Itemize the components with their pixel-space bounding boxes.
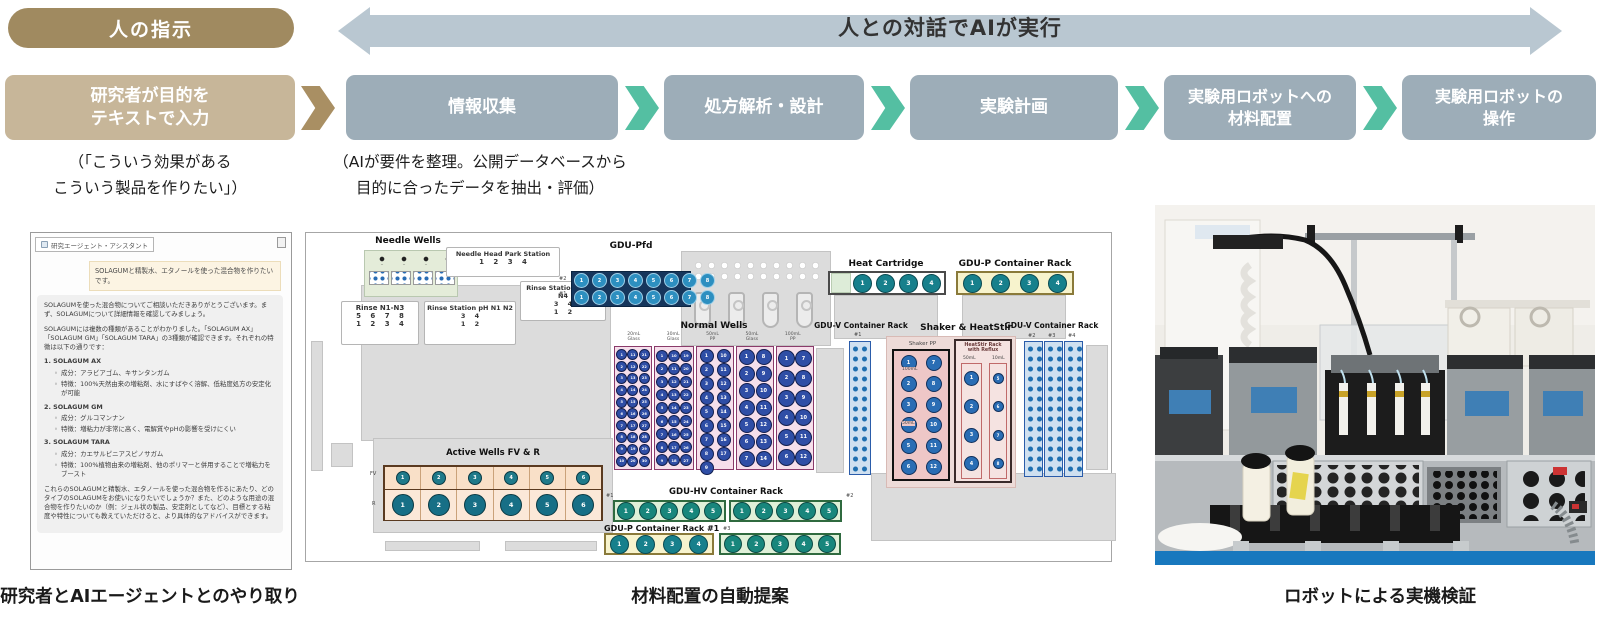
well-circle: 25 — [680, 428, 692, 440]
well-circle: 2 — [991, 274, 1010, 293]
well-circle: 3 — [616, 373, 627, 384]
flow-step-experiment-plan: 実験計画 — [910, 75, 1118, 140]
well-cell: 4 — [494, 467, 530, 489]
well-circle: 4 — [964, 456, 979, 471]
well-circle: 3 — [739, 383, 755, 399]
nw-col-header: 50mL PP — [706, 332, 719, 342]
chat-window-tab[interactable]: 研究エージェント・アシスタント — [35, 237, 154, 252]
well-circle: 10 — [926, 417, 942, 433]
heat-cartridge-rack: 1234 — [828, 271, 946, 295]
well-circle: 22 — [680, 389, 692, 401]
well-circle: 8 — [700, 273, 715, 288]
deck-block — [385, 541, 480, 551]
well-circle: 17 — [627, 420, 638, 431]
well-circle: 1 — [778, 350, 795, 367]
well-circle: 1 — [610, 535, 629, 554]
well-circle: 1 — [616, 349, 627, 360]
well-circle: 8 — [700, 290, 715, 305]
active-wells-fv-row: 123456 — [385, 467, 601, 489]
well-circle: 26 — [680, 441, 692, 453]
well-circle: 2 — [639, 502, 657, 520]
active-wells-label: Active Wells FV & R — [383, 448, 603, 458]
well-circle: 3 — [901, 397, 917, 413]
gdu-hv2-number: #2 — [846, 493, 853, 499]
well-circle: 13 — [627, 373, 638, 384]
well-cell: 4 — [494, 490, 530, 520]
well-circle: 7 — [993, 430, 1004, 441]
nw-col-50ml-pp: 1234567891011121314151617 — [696, 346, 734, 470]
well-circle: 1 — [964, 371, 979, 386]
gdu-hv-rack-2: 12345 — [729, 500, 842, 522]
flow-arrow-icon — [1363, 86, 1397, 130]
dialogue-banner-label: 人との対話でAIが実行 — [340, 12, 1560, 42]
well-circle: 5 — [739, 417, 755, 433]
well-circle: 3 — [778, 390, 795, 407]
well-circle: 5 — [818, 535, 836, 553]
well-circle: 3 — [1020, 274, 1039, 293]
needle-head-title: Needle Head Park Station — [448, 250, 558, 258]
gdu-v2-number: #2 — [1028, 333, 1035, 339]
well-circle: 4 — [628, 290, 643, 305]
well-circle: 4 — [628, 273, 643, 288]
normal-wells-label: Normal Wells — [659, 321, 769, 331]
flow-step-info-gathering: 情報収集 — [346, 75, 618, 140]
well-circle: 7 — [682, 290, 697, 305]
gdu-p1-green-number: #3 — [723, 526, 730, 532]
well-circle: 1 — [574, 273, 589, 288]
rinse-numbers: 1 2 3 4 — [343, 320, 417, 328]
well-circle: 2 — [656, 363, 668, 375]
well-circle: 12 — [795, 449, 812, 466]
well-circle: 12 — [668, 376, 680, 388]
well-circle: 1 — [739, 349, 755, 365]
note-user-goal: （「こういう効果がある こういう製品を作りたい」） — [15, 150, 285, 201]
well-circle: 2 — [616, 361, 627, 372]
agent-icon — [41, 241, 48, 248]
pfd-row-1: 12345678 — [574, 290, 688, 305]
needle-cell — [369, 271, 389, 285]
well-circle: 2 — [876, 274, 895, 293]
gdu-v-right-label: GDU-V Container Rack — [994, 321, 1109, 330]
well-cell: 1 — [385, 490, 421, 520]
ai-list-item-title: 3. SOLAGUM TARA — [44, 438, 276, 447]
well-circle: 5 — [646, 273, 661, 288]
well-circle: 15 — [717, 419, 731, 433]
rinse-title: Rinse N1-N3 — [343, 304, 417, 312]
chat-window-title: 研究エージェント・アシスタント — [51, 240, 148, 250]
well-circle: 10 — [756, 383, 772, 399]
well-circle: 6 — [576, 471, 590, 485]
needle-cell — [391, 271, 411, 285]
well-circle: 6 — [572, 494, 594, 516]
ai-list-item-detail: 成分：アラビアゴム、キサンタンガム — [54, 369, 276, 378]
well-circle: 2 — [428, 494, 450, 516]
well-circle: 1 — [617, 502, 635, 520]
well-circle: 2 — [739, 366, 755, 382]
well-circle: 23 — [680, 402, 692, 414]
well-circle: 7 — [795, 350, 812, 367]
well-circle: 8 — [656, 441, 668, 453]
well-circle: 5 — [901, 438, 917, 454]
well-circle: 17 — [668, 441, 680, 453]
gdu-pfd-label: GDU-Pfd — [571, 241, 691, 251]
well-circle: 24 — [639, 385, 650, 396]
well-circle: 11 — [627, 349, 638, 360]
ai-message-bubble: SOLAGUMを使った混合物についてご相談いただきありがとうございます。まず、S… — [37, 295, 283, 533]
well-circle: 1 — [963, 274, 982, 293]
ai-list-item-detail: 特徴：増粘力が非常に高く、電解質やpHの影響を受けにくい — [54, 425, 276, 434]
well-circle: 6 — [700, 419, 714, 433]
well-circle: 7 — [739, 451, 755, 467]
well-circle: 17 — [717, 447, 731, 461]
well-circle: 12 — [717, 377, 731, 391]
well-circle: 4 — [504, 471, 518, 485]
well-circle: 28 — [639, 432, 650, 443]
needle-wells-label: Needle Wells — [358, 236, 458, 246]
well-circle: 5 — [536, 494, 558, 516]
ai-list-item-detail: 特徴：100%天然由来の増粘剤、水にすばやく溶解、低粘度処方の安定化が可能 — [54, 380, 276, 399]
well-circle: 7 — [616, 420, 627, 431]
well-circle: 4 — [500, 494, 522, 516]
fv-row-label: FV — [370, 471, 376, 477]
shaker-pp-rack: 123456789101112 — [892, 349, 950, 481]
well-circle: 1 — [853, 274, 872, 293]
well-circle: 3 — [656, 376, 668, 388]
well-circle: 25 — [639, 397, 650, 408]
caption-deck: 材料配置の自動提案 — [555, 583, 865, 608]
well-circle: 29 — [639, 444, 650, 455]
ai-list-item-title: 1. SOLAGUM AX — [44, 357, 276, 366]
flow-arrow-icon — [871, 86, 905, 130]
well-circle: 7 — [682, 273, 697, 288]
well-circle: 3 — [899, 274, 918, 293]
well-circle: 7 — [700, 433, 714, 447]
caption-robot: ロボットによる実機検証 — [1225, 583, 1535, 608]
well-circle: 5 — [993, 373, 1004, 384]
well-circle: 4 — [778, 409, 795, 426]
gdu-pfd-rack: 12345678 12345678 — [571, 271, 691, 307]
needle-wells-board — [364, 250, 458, 297]
rinse-numbers: 5 6 7 8 — [343, 312, 417, 320]
well-circle: 5 — [646, 290, 661, 305]
well-circle: 3 — [776, 502, 794, 520]
rinse-n1-n3: Rinse N1-N3 5 6 7 8 1 2 3 4 — [341, 301, 419, 345]
pfd-row-2: 12345678 — [574, 273, 688, 288]
well-circle: 12 — [627, 361, 638, 372]
well-circle: 12 — [756, 417, 772, 433]
nw-col-header: 20mL Glass — [627, 332, 640, 342]
well-circle: 9 — [756, 366, 772, 382]
well-circle: 1 — [574, 290, 589, 305]
well-circle: 9 — [795, 390, 812, 407]
well-circle: 5 — [778, 429, 795, 446]
gdu-p1-green-rack: 12345 — [719, 533, 841, 555]
well-circle: 4 — [682, 502, 700, 520]
heatstir-50ml-label: 50mL — [963, 356, 976, 361]
rinse-numbers: 1 2 — [522, 308, 604, 316]
well-circle: 4 — [922, 274, 941, 293]
window-restore-icon[interactable] — [277, 237, 286, 248]
gdu-v-rack-3 — [1044, 341, 1063, 477]
nw-col-header: 30mL Glass — [667, 332, 680, 342]
deck-block — [1086, 345, 1108, 470]
well-circle: 4 — [700, 391, 714, 405]
well-circle: 4 — [1048, 274, 1067, 293]
heatstir-50ml-column: 1234 — [961, 363, 982, 479]
well-circle: 14 — [717, 405, 731, 419]
well-circle: 8 — [993, 458, 1004, 469]
well-circle: 2 — [964, 399, 979, 414]
well-circle: 15 — [668, 415, 680, 427]
well-circle: 30 — [639, 456, 650, 467]
deck-block — [311, 341, 323, 471]
well-circle: 1 — [724, 535, 742, 553]
ai-list-item-detail: 成分：グルコマンナン — [54, 414, 276, 423]
well-circle: 6 — [778, 449, 795, 466]
well-circle: 5 — [616, 397, 627, 408]
well-cell: 1 — [385, 467, 421, 489]
needle-dots — [371, 255, 455, 265]
well-circle: 13 — [756, 434, 772, 450]
well-circle: 7 — [926, 355, 942, 371]
agent-chat-window: 研究エージェント・アシスタント SOLAGUMと精製水、エタノールを使った混合物… — [30, 232, 292, 570]
well-circle: 2 — [778, 370, 795, 387]
well-circle: 11 — [717, 363, 731, 377]
well-circle: 3 — [610, 290, 625, 305]
well-circle: 14 — [756, 451, 772, 467]
well-circle: 6 — [901, 459, 917, 475]
shaker-100ml-label: 100mL — [902, 367, 917, 372]
well-circle: 1 — [396, 471, 410, 485]
deck-block — [331, 443, 353, 467]
well-circle: 16 — [668, 428, 680, 440]
well-circle: 5 — [700, 405, 714, 419]
heatstir-10ml-column: 5678 — [989, 363, 1007, 479]
well-circle: 2 — [592, 290, 607, 305]
ai-paragraph: これらのSOLAGUMと精製水、エタノールを使った混合物を作るにあたり、どのタイ… — [44, 485, 276, 522]
well-circle: 6 — [739, 434, 755, 450]
flow-arrow-brown-icon — [301, 86, 335, 130]
well-circle: 3 — [610, 273, 625, 288]
well-circle: 11 — [756, 400, 772, 416]
well-circle: 4 — [798, 502, 816, 520]
shaker-50ml-label: 50mL — [902, 421, 915, 426]
well-circle: 13 — [717, 391, 731, 405]
flow-step-robot-operation: 実験用ロボットの 操作 — [1402, 75, 1596, 140]
well-circle: 7 — [656, 428, 668, 440]
nw-col-100ml-pp: 123456789101112 — [776, 346, 814, 470]
needle-cell — [413, 271, 433, 285]
rinse-station-ph-n1-n2: Rinse Station pH N1 N2 3 4 1 2 — [424, 301, 516, 345]
well-circle: 18 — [627, 432, 638, 443]
gdu-v4-number: #4 — [1068, 333, 1075, 339]
flow-step-formulation-analysis: 処方解析・設計 — [664, 75, 864, 140]
r-row-label: R — [372, 501, 375, 507]
needle-head-numbers: 1 2 3 4 — [448, 258, 558, 266]
ai-list-item-detail: 成分：カエサルピニアスピノサガム — [54, 450, 276, 459]
well-circle: 2 — [636, 535, 655, 554]
heatstir-10ml-label: 10mL — [992, 356, 1005, 361]
well-circle: 2 — [700, 363, 714, 377]
well-circle: 9 — [700, 461, 714, 475]
well-circle: 11 — [668, 363, 680, 375]
well-circle: 6 — [664, 290, 679, 305]
well-circle: 16 — [717, 433, 731, 447]
well-circle: 9 — [926, 397, 942, 413]
deck-layout-diagram: Needle Wells Needle Head Park Station 1 … — [305, 232, 1112, 562]
well-circle: 4 — [656, 389, 668, 401]
robot-photo-illustration — [1155, 205, 1595, 565]
gdu-v-left-number: #1 — [854, 332, 861, 338]
well-circle: 1 — [392, 494, 414, 516]
flow-input-box: 研究者が目的を テキストで入力 — [5, 75, 295, 140]
well-circle: 3 — [700, 377, 714, 391]
gdu-v-rack-4 — [1064, 341, 1083, 477]
nw-col-30ml-glass: 1234567891011121314151617181920212223242… — [654, 346, 694, 470]
well-cell: 2 — [421, 490, 457, 520]
human-instruction-pill: 人の指示 — [8, 8, 294, 48]
gdu-v-rack-2 — [1024, 341, 1043, 477]
well-circle: 5 — [704, 502, 722, 520]
well-circle: 13 — [668, 389, 680, 401]
gdu-p-rack-label: GDU-P Container Rack — [954, 259, 1076, 269]
nw-col-20ml-glass: 1234567891011121314151617181920212223242… — [614, 346, 652, 470]
rinse-numbers: 1 2 — [426, 320, 514, 328]
well-circle: 9 — [616, 444, 627, 455]
nw-col-header: 100mL PP — [785, 332, 801, 342]
well-circle: 2 — [901, 376, 917, 392]
pfd-row1-label: #1 — [559, 291, 566, 297]
well-circle: 10 — [616, 456, 627, 467]
well-circle: 24 — [680, 415, 692, 427]
nw-col-50ml-glass: 1234567891011121314 — [736, 346, 774, 470]
pfd-row2-label: #2 — [559, 276, 566, 282]
heat-cartridge-label: Heat Cartridge — [826, 259, 946, 269]
gdu-p-rack: 1234 — [956, 271, 1074, 295]
well-circle: 6 — [616, 408, 627, 419]
well-circle: 27 — [680, 454, 692, 466]
well-circle: 5 — [820, 502, 838, 520]
well-cell: 5 — [530, 490, 566, 520]
well-circle: 8 — [756, 349, 772, 365]
caption-chat: 研究者とAIエージェントとのやり取り — [0, 583, 300, 608]
well-circle: 6 — [664, 273, 679, 288]
gdu-p-rack-1: 1234 — [604, 533, 714, 555]
well-circle: 4 — [795, 535, 813, 553]
well-circle: 19 — [627, 444, 638, 455]
well-circle: 8 — [700, 447, 714, 461]
active-wells-r-row: 123456 — [385, 489, 601, 520]
flow-arrow-icon — [1125, 86, 1159, 130]
well-circle: 8 — [795, 370, 812, 387]
nw-col-header: 50mL Glass — [745, 332, 758, 342]
well-circle: 3 — [964, 428, 979, 443]
well-circle: 5 — [656, 402, 668, 414]
well-circle: 18 — [668, 454, 680, 466]
well-circle: 9 — [656, 454, 668, 466]
well-circle: 23 — [639, 373, 650, 384]
well-circle: 10 — [717, 349, 731, 363]
well-circle: 20 — [627, 456, 638, 467]
well-circle: 11 — [795, 429, 812, 446]
ai-paragraph: SOLAGUMには複数の種類があることがわかりました。「SOLAGUM AX」「… — [44, 325, 276, 353]
well-circle: 1 — [700, 349, 714, 363]
heat-cartridge-wells: 1234 — [851, 274, 943, 293]
well-circle: 22 — [639, 361, 650, 372]
ai-list-item-title: 2. SOLAGUM GM — [44, 403, 276, 412]
ai-list-item-detail: 特徴：100%植物由来の増粘剤、他のポリマーと併用することで増粘力をブースト — [54, 461, 276, 480]
flow-arrow-icon — [625, 86, 659, 130]
well-circle: 14 — [668, 402, 680, 414]
well-circle: 1 — [656, 350, 668, 362]
well-cell: 5 — [530, 467, 566, 489]
well-circle: 16 — [627, 408, 638, 419]
well-circle: 14 — [627, 385, 638, 396]
well-cell: 2 — [421, 467, 457, 489]
normal-wells-plate: 1234567891011121314151617181920212223242… — [614, 346, 814, 470]
well-circle: 12 — [926, 459, 942, 475]
note-ai-requirements: （AIが要件を整理。公開データベースから 目的に合ったデータを抽出・評価） — [300, 150, 660, 201]
gdu-hv-label: GDU-HV Container Rack — [636, 487, 816, 497]
well-circle: 8 — [616, 432, 627, 443]
well-circle: 6 — [656, 415, 668, 427]
user-message-bubble: SOLAGUMと精製水、エタノールを使った混合物を作りたいです。 — [89, 261, 281, 291]
deck-block — [505, 541, 597, 551]
well-cell: 6 — [566, 490, 601, 520]
well-circle: 3 — [660, 502, 678, 520]
well-circle: 8 — [926, 376, 942, 392]
well-circle: 21 — [639, 349, 650, 360]
well-circle: 5 — [540, 471, 554, 485]
heat-cartridge-empty-cell — [831, 273, 851, 293]
well-circle: 3 — [663, 535, 682, 554]
heatstir-title: HeatStir Rack with Reflux — [956, 343, 1010, 353]
well-circle: 10 — [668, 350, 680, 362]
well-circle: 21 — [680, 376, 692, 388]
well-circle: 4 — [616, 385, 627, 396]
heatstir-rack: HeatStir Rack with Reflux 50mL 10mL 1234… — [954, 339, 1012, 483]
well-circle: 26 — [639, 408, 650, 419]
well-cell: 6 — [566, 467, 601, 489]
deck-block — [816, 348, 844, 473]
well-circle: 20 — [680, 363, 692, 375]
rinse-numbers: 3 4 — [426, 312, 514, 320]
well-cell: 3 — [457, 467, 493, 489]
well-cell: 3 — [457, 490, 493, 520]
gdu-v-rack-1 — [849, 341, 871, 475]
gdu-v3-number: #3 — [1048, 333, 1055, 339]
shaker-pp-label: Shaker PP — [895, 341, 950, 347]
well-circle: 11 — [926, 438, 942, 454]
needle-head-park-station: Needle Head Park Station 1 2 3 4 — [446, 247, 560, 277]
well-circle: 2 — [755, 502, 773, 520]
well-circle: 3 — [771, 535, 789, 553]
well-circle: 27 — [639, 420, 650, 431]
rinse-title: Rinse Station pH N1 N2 — [426, 304, 514, 312]
ai-paragraph: SOLAGUMを使った混合物についてご相談いただきありがとうございます。まず、S… — [44, 301, 276, 320]
well-circle: 2 — [592, 273, 607, 288]
well-circle: 1 — [733, 502, 751, 520]
well-circle: 2 — [747, 535, 765, 553]
gdu-hv1-number: #1 — [606, 493, 613, 499]
well-circle: 10 — [795, 409, 812, 426]
gdu-hv-rack-1: 12345 — [613, 500, 726, 522]
flow-step-material-placement: 実験用ロボットへの 材料配置 — [1164, 75, 1356, 140]
robot-photo — [1155, 205, 1595, 565]
well-circle: 4 — [689, 535, 708, 554]
well-circle: 3 — [464, 494, 486, 516]
well-circle: 4 — [739, 400, 755, 416]
